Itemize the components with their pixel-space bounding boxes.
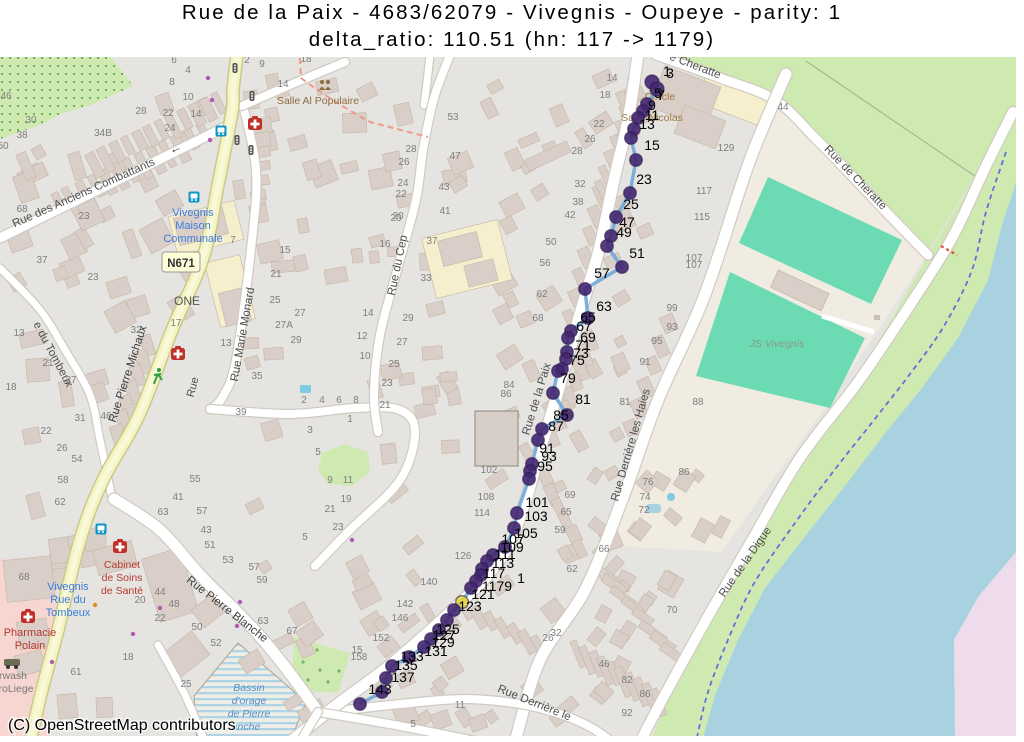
svg-text:ONE: ONE [174,294,200,308]
svg-text:23: 23 [636,171,652,187]
svg-text:15: 15 [644,137,660,153]
svg-text:33: 33 [420,273,432,284]
svg-text:28: 28 [571,146,583,157]
svg-text:26: 26 [398,157,410,168]
svg-text:14: 14 [606,73,618,84]
svg-text:16: 16 [379,239,391,250]
svg-text:N671: N671 [167,258,195,270]
svg-text:6: 6 [336,395,342,406]
svg-text:rwash: rwash [0,670,27,682]
svg-text:32: 32 [574,179,586,190]
svg-text:57: 57 [594,265,610,281]
svg-text:44: 44 [154,587,166,598]
svg-text:95: 95 [651,336,663,347]
svg-text:146: 146 [392,613,409,624]
svg-text:21: 21 [324,504,336,515]
svg-text:27: 27 [396,337,408,348]
svg-text:72: 72 [638,505,650,516]
svg-text:129: 129 [718,143,735,154]
svg-text:15: 15 [279,245,291,256]
svg-text:Polain: Polain [15,640,46,652]
svg-text:81: 81 [575,391,591,407]
svg-text:81: 81 [619,397,631,408]
svg-text:Vivegnis: Vivegnis [47,581,89,593]
svg-text:22: 22 [154,613,166,624]
svg-text:28: 28 [405,144,417,155]
svg-text:14: 14 [362,308,374,319]
svg-text:114: 114 [474,508,490,519]
svg-text:8: 8 [353,395,359,406]
svg-text:44: 44 [777,102,789,113]
svg-text:47: 47 [449,151,461,162]
svg-text:42: 42 [564,210,576,221]
svg-text:79: 79 [560,370,576,386]
svg-text:12: 12 [356,331,368,342]
svg-text:Bassin: Bassin [233,682,265,694]
svg-text:1: 1 [517,570,525,586]
svg-text:18: 18 [5,382,17,393]
svg-text:Rue du: Rue du [50,594,85,606]
svg-text:117: 117 [696,186,712,197]
svg-text:8: 8 [169,77,175,88]
svg-text:1: 1 [347,414,353,425]
svg-text:152: 152 [373,633,390,644]
svg-text:20: 20 [134,595,146,606]
svg-text:28: 28 [135,106,147,117]
svg-text:JS Vivegnis: JS Vivegnis [749,338,805,350]
svg-text:57: 57 [196,506,208,517]
svg-text:143: 143 [368,681,392,697]
svg-text:11: 11 [455,700,466,711]
svg-text:25: 25 [623,196,639,212]
svg-text:131: 131 [424,643,448,659]
svg-text:3: 3 [307,425,313,436]
svg-text:21: 21 [379,400,391,411]
svg-text:14: 14 [277,79,289,90]
svg-text:86: 86 [639,689,651,700]
svg-text:70: 70 [666,605,678,616]
svg-text:52: 52 [210,638,222,649]
svg-text:74: 74 [639,492,651,503]
svg-text:86: 86 [678,467,690,478]
svg-text:(C) OpenStreetMap contributors: (C) OpenStreetMap contributors [8,717,236,734]
svg-text:7: 7 [230,235,236,246]
svg-text:67: 67 [286,626,298,637]
svg-text:22: 22 [593,119,605,130]
svg-text:137: 137 [391,669,415,685]
svg-text:29: 29 [290,335,302,346]
svg-text:48: 48 [168,599,180,610]
svg-text:54: 54 [71,454,83,465]
svg-text:62: 62 [54,497,66,508]
svg-text:34B: 34B [94,128,112,139]
svg-text:32: 32 [550,628,562,639]
svg-text:20: 20 [392,211,404,222]
svg-text:22: 22 [162,108,174,119]
svg-text:37: 37 [426,236,438,247]
svg-text:39: 39 [235,407,247,418]
svg-text:50: 50 [191,622,203,633]
svg-text:18: 18 [300,57,312,65]
svg-text:27A: 27A [275,320,293,331]
svg-text:32: 32 [130,325,142,336]
svg-text:41: 41 [439,206,451,217]
svg-text:61: 61 [70,667,82,678]
svg-text:d'orage: d'orage [232,695,267,707]
svg-text:38: 38 [16,130,28,141]
svg-text:anche: anche [232,721,261,733]
svg-text:108: 108 [478,492,495,503]
svg-text:82: 82 [621,675,633,686]
svg-text:46: 46 [0,91,12,102]
svg-text:50: 50 [545,237,557,248]
svg-text:25: 25 [388,359,400,370]
svg-text:Cabinet: Cabinet [104,559,140,571]
svg-text:63: 63 [257,616,269,627]
svg-text:21: 21 [270,269,282,280]
svg-text:Salle Al Populaire: Salle Al Populaire [277,95,359,107]
svg-text:30: 30 [25,115,37,126]
svg-text:Vivegnis: Vivegnis [172,207,214,219]
svg-text:26: 26 [584,134,596,145]
svg-text:10: 10 [359,351,371,362]
svg-text:9: 9 [259,59,265,70]
svg-text:95: 95 [537,458,553,474]
svg-text:6: 6 [171,57,177,66]
svg-text:37: 37 [36,255,48,266]
svg-text:de Soins: de Soins [102,572,143,584]
svg-text:50: 50 [0,141,9,152]
svg-text:43: 43 [200,525,212,536]
svg-text:27: 27 [65,375,77,386]
svg-text:22: 22 [40,426,52,437]
svg-text:75: 75 [569,352,585,368]
svg-text:126: 126 [455,551,472,562]
svg-text:59: 59 [554,525,566,536]
svg-text:68: 68 [532,313,544,324]
svg-text:11: 11 [343,475,354,486]
svg-text:21: 21 [42,358,54,369]
svg-text:65: 65 [560,507,572,518]
svg-text:93: 93 [666,322,678,333]
svg-text:53: 53 [222,555,234,566]
svg-text:57: 57 [248,562,260,573]
svg-text:142: 142 [397,599,414,610]
svg-text:51: 51 [629,245,645,261]
svg-text:4: 4 [185,65,191,76]
svg-text:88: 88 [692,397,704,408]
svg-text:3: 3 [666,65,674,81]
svg-text:roLiege: roLiege [0,683,34,695]
svg-text:10: 10 [182,92,194,103]
svg-text:17: 17 [170,318,182,329]
svg-text:23: 23 [78,211,90,222]
svg-text:41: 41 [172,492,184,503]
svg-text:31: 31 [74,413,86,424]
svg-text:63: 63 [157,507,169,518]
svg-text:25: 25 [180,679,192,690]
svg-text:76: 76 [642,477,654,488]
svg-text:13: 13 [639,116,655,132]
svg-text:59: 59 [256,575,268,586]
svg-text:Tombeux: Tombeux [46,607,91,619]
svg-text:Communale: Communale [163,233,222,245]
svg-text:46: 46 [100,411,112,422]
svg-text:68: 68 [16,204,28,215]
svg-text:29: 29 [402,313,414,324]
svg-text:14: 14 [190,109,202,120]
svg-text:53: 53 [447,112,459,123]
svg-text:35: 35 [251,371,263,382]
svg-text:86: 86 [500,389,512,400]
svg-text:49: 49 [616,224,632,240]
svg-text:Maison: Maison [175,220,210,232]
svg-text:56: 56 [539,258,551,269]
svg-text:26: 26 [56,443,68,454]
svg-text:107: 107 [686,260,703,271]
svg-text:24: 24 [397,178,409,189]
svg-text:23: 23 [332,522,344,533]
svg-text:18: 18 [599,90,611,101]
svg-text:Pharmacie: Pharmacie [4,627,57,639]
svg-text:2: 2 [301,395,307,406]
svg-text:5: 5 [410,719,416,730]
svg-text:99: 99 [666,303,678,314]
svg-text:22: 22 [395,189,407,200]
svg-text:5: 5 [302,532,308,543]
svg-text:55: 55 [189,474,201,485]
svg-text:115: 115 [694,212,710,223]
svg-text:2: 2 [244,57,250,66]
svg-text:51: 51 [204,540,216,551]
svg-text:62: 62 [566,564,578,575]
svg-text:68: 68 [18,572,30,583]
svg-text:13: 13 [220,338,232,349]
svg-text:13: 13 [13,328,25,339]
svg-text:15: 15 [351,645,363,656]
svg-text:5: 5 [315,447,321,458]
svg-text:7: 7 [657,87,665,103]
svg-text:102: 102 [481,465,498,476]
svg-text:46: 46 [598,659,610,670]
svg-text:91: 91 [639,357,651,368]
svg-text:58: 58 [57,475,69,486]
svg-text:24: 24 [164,123,176,134]
svg-text:87: 87 [548,418,564,434]
svg-text:103: 103 [524,508,548,524]
svg-text:69: 69 [564,490,576,501]
svg-text:38: 38 [572,197,584,208]
svg-text:140: 140 [421,577,438,588]
svg-text:63: 63 [596,298,612,314]
svg-text:62: 62 [536,289,548,300]
svg-text:43: 43 [438,182,450,193]
svg-text:66: 66 [598,544,610,555]
svg-text:9: 9 [327,475,333,486]
svg-text:23: 23 [87,272,99,283]
svg-text:92: 92 [621,708,633,719]
svg-text:18: 18 [122,652,134,663]
svg-text:23: 23 [381,378,393,389]
svg-text:19: 19 [340,494,352,505]
svg-text:27: 27 [294,308,306,319]
svg-text:123: 123 [458,598,482,614]
svg-text:4: 4 [319,395,325,406]
svg-text:25: 25 [269,295,281,306]
